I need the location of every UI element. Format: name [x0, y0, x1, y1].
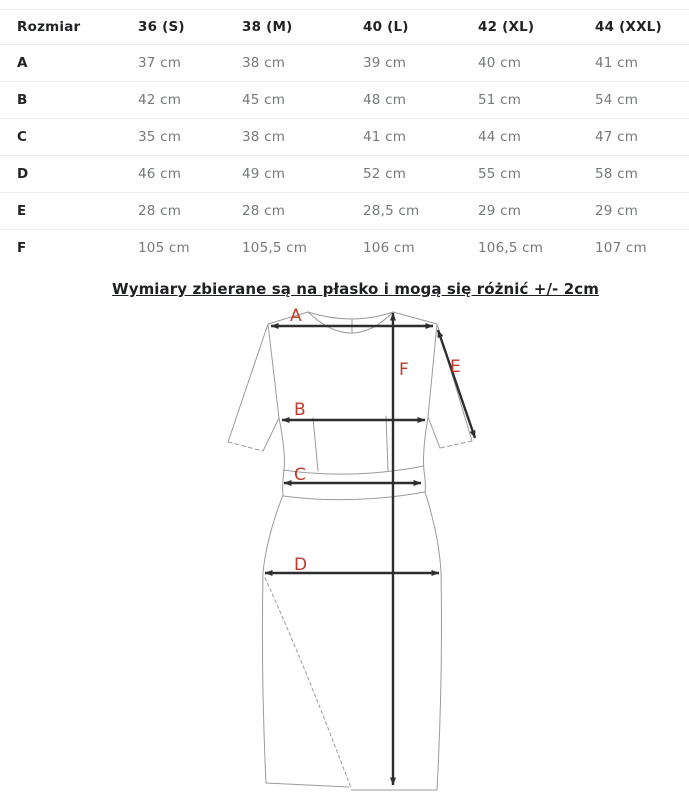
skirt-wrap-seam: [265, 578, 351, 788]
size-value-cell: 44 cm: [461, 119, 578, 156]
size-value-cell: 41 cm: [578, 45, 689, 82]
table-header-row: Rozmiar 36 (S) 38 (M) 40 (L) 42 (XL) 44 …: [0, 10, 689, 45]
row-label-d: D: [0, 156, 121, 193]
size-value-cell: 46 cm: [121, 156, 225, 193]
left-sleeve-hem: [228, 442, 263, 451]
waistband-lower-seam: [283, 492, 425, 500]
size-value-cell: 42 cm: [121, 82, 225, 119]
column-header-rozmiar: Rozmiar: [0, 10, 121, 45]
table-row-b: B 42 cm 45 cm 48 cm 51 cm 54 cm: [0, 82, 689, 119]
measure-arrow-e: [438, 330, 475, 438]
size-value-cell: 45 cm: [225, 82, 346, 119]
size-value-cell: 35 cm: [121, 119, 225, 156]
column-header-42xl: 42 (XL): [461, 10, 578, 45]
measure-label-c: C: [294, 465, 306, 485]
table-row-e: E 28 cm 28 cm 28,5 cm 29 cm 29 cm: [0, 193, 689, 230]
left-armhole-seam: [268, 324, 279, 418]
size-value-cell: 37 cm: [121, 45, 225, 82]
size-value-cell: 55 cm: [461, 156, 578, 193]
row-label-b: B: [0, 82, 121, 119]
column-header-36s: 36 (S): [121, 10, 225, 45]
table-row-d: D 46 cm 49 cm 52 cm 55 cm 58 cm: [0, 156, 689, 193]
size-value-cell: 48 cm: [346, 82, 461, 119]
size-value-cell: 41 cm: [346, 119, 461, 156]
measure-label-f: F: [399, 360, 409, 380]
size-value-cell: 28 cm: [225, 193, 346, 230]
size-guide-page: Rozmiar 36 (S) 38 (M) 40 (L) 42 (XL) 44 …: [0, 9, 689, 801]
left-dart-seam: [313, 418, 318, 471]
measure-label-e: E: [450, 357, 461, 377]
size-value-cell: 51 cm: [461, 82, 578, 119]
size-value-cell: 105 cm: [121, 230, 225, 267]
size-value-cell: 52 cm: [346, 156, 461, 193]
right-sleeve-inner: [428, 417, 440, 448]
size-value-cell: 28 cm: [121, 193, 225, 230]
size-value-cell: 106,5 cm: [461, 230, 578, 267]
size-value-cell: 40 cm: [461, 45, 578, 82]
size-value-cell: 47 cm: [578, 119, 689, 156]
size-value-cell: 38 cm: [225, 45, 346, 82]
size-value-cell: 29 cm: [578, 193, 689, 230]
left-shoulder-seam: [268, 312, 308, 324]
size-value-cell: 58 cm: [578, 156, 689, 193]
hem-underlayer: [266, 783, 349, 787]
row-label-f: F: [0, 230, 121, 267]
left-body-edge: [262, 418, 284, 783]
size-value-cell: 107 cm: [578, 230, 689, 267]
right-armhole-seam: [428, 324, 437, 417]
table-row-c: C 35 cm 38 cm 41 cm 44 cm 47 cm: [0, 119, 689, 156]
size-table: Rozmiar 36 (S) 38 (M) 40 (L) 42 (XL) 44 …: [0, 9, 689, 266]
size-value-cell: 29 cm: [461, 193, 578, 230]
left-sleeve-outer: [228, 324, 268, 442]
row-label-a: A: [0, 45, 121, 82]
left-sleeve-inner: [263, 418, 279, 451]
dress-outline: [228, 312, 472, 790]
size-value-cell: 28,5 cm: [346, 193, 461, 230]
right-sleeve-hem: [440, 441, 472, 448]
row-label-c: C: [0, 119, 121, 156]
row-label-e: E: [0, 193, 121, 230]
column-header-38m: 38 (M): [225, 10, 346, 45]
measure-label-b: B: [294, 400, 306, 420]
column-header-40l: 40 (L): [346, 10, 461, 45]
size-value-cell: 38 cm: [225, 119, 346, 156]
measurement-arrows: [265, 313, 475, 785]
measurement-disclaimer: Wymiary zbierane są na płasko i mogą się…: [0, 280, 689, 298]
right-shoulder-seam: [393, 312, 437, 324]
size-value-cell: 106 cm: [346, 230, 461, 267]
measure-label-a: A: [290, 306, 302, 326]
table-row-f: F 105 cm 105,5 cm 106 cm 106,5 cm 107 cm: [0, 230, 689, 267]
neckline-back: [308, 312, 393, 319]
table-row-a: A 37 cm 38 cm 39 cm 40 cm 41 cm: [0, 45, 689, 82]
size-value-cell: 105,5 cm: [225, 230, 346, 267]
right-dart-seam: [386, 416, 388, 471]
right-body-edge: [424, 417, 442, 790]
measure-label-d: D: [294, 555, 307, 575]
size-value-cell: 39 cm: [346, 45, 461, 82]
size-value-cell: 54 cm: [578, 82, 689, 119]
size-value-cell: 49 cm: [225, 156, 346, 193]
dress-measurement-diagram: A B C D E F: [0, 301, 689, 801]
column-header-44xxl: 44 (XXL): [578, 10, 689, 45]
